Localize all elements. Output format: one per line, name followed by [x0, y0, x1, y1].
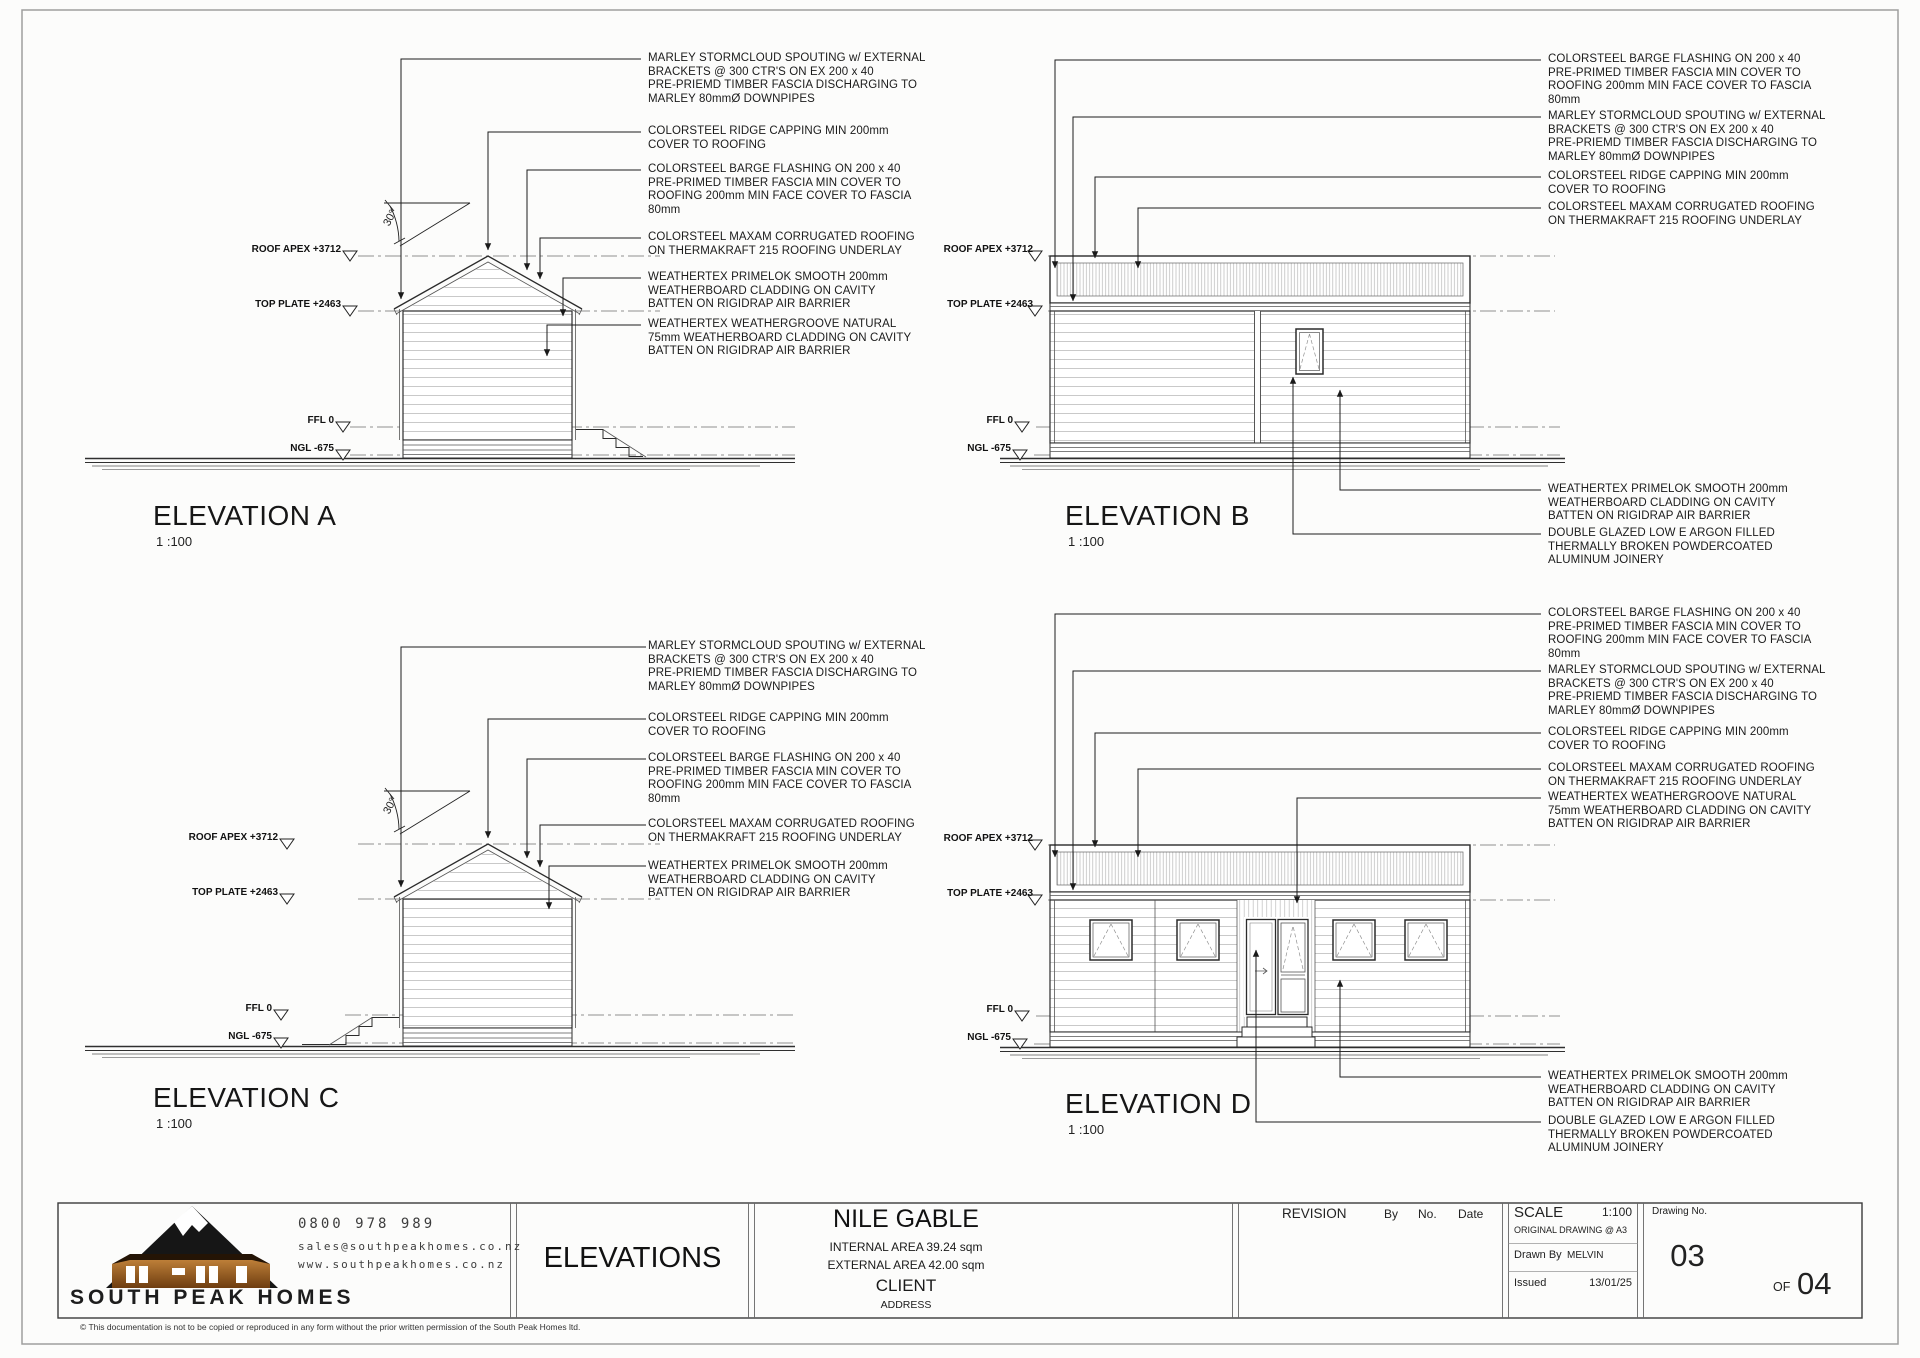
note-weathergroove: WEATHERTEX WEATHERGROOVE NATURAL 75mm WE…: [648, 318, 911, 359]
copyright-note: © This documentation is not to be copied…: [80, 1322, 580, 1332]
scale-label: SCALE: [1514, 1204, 1563, 1221]
datum-roof-apex: ROOF APEX +3712: [903, 244, 1033, 255]
note-ridge: COLORSTEEL RIDGE CAPPING MIN 200mm COVER…: [1548, 726, 1789, 753]
elevation-c-drawing: [85, 647, 795, 1058]
note-ridge: COLORSTEEL RIDGE CAPPING MIN 200mm COVER…: [648, 712, 889, 739]
datum-ngl: NGL -675: [142, 1031, 272, 1042]
company-logo: [106, 1206, 278, 1288]
note-maxam: COLORSTEEL MAXAM CORRUGATED ROOFING ON T…: [648, 231, 915, 258]
note-marley: MARLEY STORMCLOUD SPOUTING w/ EXTERNAL B…: [1548, 664, 1826, 718]
elevation-a-title: ELEVATION A: [153, 500, 336, 532]
elevation-b-drawing: [1000, 60, 1565, 534]
note-ridge: COLORSTEEL RIDGE CAPPING MIN 200mm COVER…: [1548, 170, 1789, 197]
company-phone: 0800 978 989: [298, 1216, 435, 1232]
note-barge: COLORSTEEL BARGE FLASHING ON 200 x 40 PR…: [1548, 53, 1811, 107]
company-website: www.southpeakhomes.co.nz: [298, 1258, 505, 1271]
elevation-b-scale: 1 :100: [1068, 534, 1104, 549]
original-drawing-note: ORIGINAL DRAWING @ A3: [1514, 1225, 1627, 1235]
note-weathergroove: WEATHERTEX WEATHERGROOVE NATURAL 75mm WE…: [1548, 791, 1811, 832]
elevation-d-title: ELEVATION D: [1065, 1088, 1252, 1120]
datum-ngl: NGL -675: [881, 1032, 1011, 1043]
datum-roof-apex: ROOF APEX +3712: [211, 244, 341, 255]
drawing-of-label: OF: [1773, 1280, 1790, 1294]
project-block: NILE GABLE INTERNAL AREA 39.24 sqm EXTER…: [756, 1205, 1056, 1311]
note-primelok: WEATHERTEX PRIMELOK SMOOTH 200mm WEATHER…: [1548, 483, 1788, 524]
drawn-by-value: MELVIN: [1567, 1250, 1604, 1261]
datum-top-plate: TOP PLATE +2463: [211, 299, 341, 310]
note-marley: MARLEY STORMCLOUD SPOUTING w/ EXTERNAL B…: [648, 640, 926, 694]
note-primelok: WEATHERTEX PRIMELOK SMOOTH 200mm WEATHER…: [648, 860, 888, 901]
note-maxam: COLORSTEEL MAXAM CORRUGATED ROOFING ON T…: [1548, 201, 1815, 228]
project-name: NILE GABLE: [756, 1205, 1056, 1234]
datum-ffl: FFL 0: [883, 1004, 1013, 1015]
note-maxam: COLORSTEEL MAXAM CORRUGATED ROOFING ON T…: [1548, 762, 1815, 789]
revision-date-label: Date: [1458, 1207, 1483, 1221]
external-area: EXTERNAL AREA 42.00 sqm: [756, 1258, 1056, 1272]
entry-door: [1244, 917, 1310, 1017]
company-email: sales@southpeakhomes.co.nz: [298, 1240, 522, 1253]
revision-by-label: By: [1384, 1207, 1398, 1221]
note-primelok: WEATHERTEX PRIMELOK SMOOTH 200mm WEATHER…: [648, 271, 888, 312]
datum-roof-apex: ROOF APEX +3712: [903, 833, 1033, 844]
drawing-no-value: 03: [1660, 1238, 1715, 1274]
datum-top-plate: TOP PLATE +2463: [903, 299, 1033, 310]
note-ridge: COLORSTEEL RIDGE CAPPING MIN 200mm COVER…: [648, 125, 889, 152]
note-maxam: COLORSTEEL MAXAM CORRUGATED ROOFING ON T…: [648, 818, 915, 845]
issued-date: 13/01/25: [1570, 1277, 1632, 1289]
drawing-total-value: 04: [1797, 1266, 1831, 1302]
drawn-by-label: Drawn By: [1514, 1249, 1562, 1261]
datum-ffl: FFL 0: [142, 1003, 272, 1014]
datum-top-plate: TOP PLATE +2463: [148, 887, 278, 898]
note-barge: COLORSTEEL BARGE FLASHING ON 200 x 40 PR…: [1548, 607, 1811, 661]
internal-area: INTERNAL AREA 39.24 sqm: [756, 1240, 1056, 1254]
datum-ffl: FFL 0: [883, 415, 1013, 426]
note-marley: MARLEY STORMCLOUD SPOUTING w/ EXTERNAL B…: [648, 52, 926, 106]
note-double-glazed: DOUBLE GLAZED LOW E ARGON FILLED THERMAL…: [1548, 1115, 1775, 1156]
note-barge: COLORSTEEL BARGE FLASHING ON 200 x 40 PR…: [648, 163, 911, 217]
elevation-c-title: ELEVATION C: [153, 1082, 340, 1114]
scale-value: 1:100: [1570, 1205, 1632, 1219]
revision-label: REVISION: [1282, 1206, 1347, 1221]
elevation-a-drawing: [85, 59, 795, 470]
elevation-c-scale: 1 :100: [156, 1116, 192, 1131]
client-label: CLIENT: [756, 1276, 1056, 1296]
datum-ffl: FFL 0: [204, 415, 334, 426]
company-name: SOUTH PEAK HOMES: [70, 1286, 355, 1310]
datum-ngl: NGL -675: [881, 443, 1011, 454]
note-primelok: WEATHERTEX PRIMELOK SMOOTH 200mm WEATHER…: [1548, 1070, 1788, 1111]
elevation-b-title: ELEVATION B: [1065, 500, 1250, 532]
datum-top-plate: TOP PLATE +2463: [903, 888, 1033, 899]
drawing-no-label: Drawing No.: [1652, 1206, 1707, 1217]
elevation-d-scale: 1 :100: [1068, 1122, 1104, 1137]
note-barge: COLORSTEEL BARGE FLASHING ON 200 x 40 PR…: [648, 752, 911, 806]
revision-no-label: No.: [1418, 1207, 1437, 1221]
address-label: ADDRESS: [756, 1299, 1056, 1311]
note-marley: MARLEY STORMCLOUD SPOUTING w/ EXTERNAL B…: [1548, 110, 1826, 164]
entry-steps: [1237, 1017, 1315, 1047]
issued-label: Issued: [1514, 1277, 1546, 1289]
note-double-glazed: DOUBLE GLAZED LOW E ARGON FILLED THERMAL…: [1548, 527, 1775, 568]
sheet-title: ELEVATIONS: [517, 1242, 748, 1275]
drawing-sheet: MARLEY STORMCLOUD SPOUTING w/ EXTERNAL B…: [0, 0, 1920, 1358]
datum-roof-apex: ROOF APEX +3712: [148, 832, 278, 843]
elevation-d-drawing: [1000, 614, 1565, 1122]
elevation-a-scale: 1 :100: [156, 534, 192, 549]
datum-ngl: NGL -675: [204, 443, 334, 454]
